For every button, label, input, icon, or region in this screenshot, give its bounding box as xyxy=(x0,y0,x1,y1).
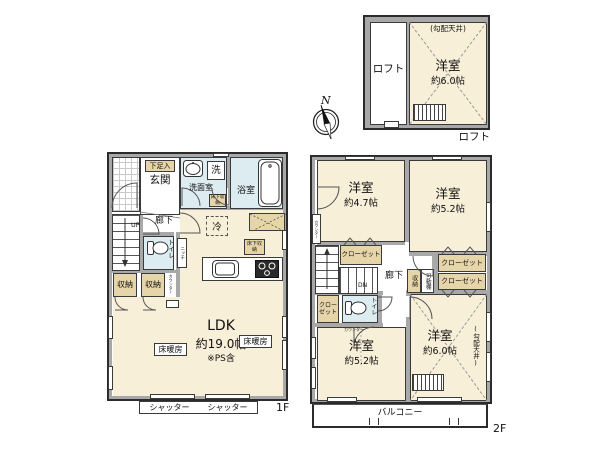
loft-room-size: 約6.0帖 xyxy=(409,77,487,88)
f2-room-se-ceiling: (勾配天井) xyxy=(471,325,478,380)
f2-dn-label: DN xyxy=(358,283,367,290)
loft-ladder-icon xyxy=(413,104,446,121)
f1-floor-heating-a-label: 床暖房 xyxy=(159,345,183,355)
f1-caption: 1F xyxy=(276,402,289,415)
f1-toilet-label: トイレ xyxy=(166,239,173,269)
loft-area-label: ロフト xyxy=(370,63,407,75)
f1-floor-heating-b: 床暖房 xyxy=(239,335,272,348)
loft-caption: ロフト xyxy=(448,131,490,143)
f2-balcony-label: バルコニー xyxy=(314,408,486,418)
second-floor-plan: クローゼット 収納 可動棚 クローゼット クローゼット クローゼット トイレ カ… xyxy=(310,155,492,404)
floor-plan-page: ロフト (勾配天井) 洋室 約6.0帖 ロフト N xyxy=(0,0,600,450)
f2-balcony-post xyxy=(369,418,379,425)
f1-floor-heating-a: 床暖房 xyxy=(154,343,187,356)
f1-genkan-label: 玄関 xyxy=(140,174,180,186)
f2-balcony-post xyxy=(449,418,459,425)
f2-caption: 2F xyxy=(493,423,506,436)
f1-shutter-strip: シャッター シャッター xyxy=(139,401,258,414)
f1-ldk-label: LDK xyxy=(191,318,251,334)
f2-room-sw-size: 約5.2帖 xyxy=(317,357,406,368)
loft-hatch-opening xyxy=(384,121,399,128)
f2-room-nw-size: 約4.7帖 xyxy=(317,199,405,210)
f2-room-sw-label: 洋室 xyxy=(317,339,406,353)
f2-room-ne-size: 約5.2帖 xyxy=(409,205,487,216)
f2-room-ne-label: 洋室 xyxy=(409,187,487,201)
f1-hallway-label: 廊下 xyxy=(149,216,179,226)
f1-washroom-label: 洗面室 xyxy=(181,183,221,192)
f2-hallway-label: 廊下 xyxy=(378,271,410,281)
f2-room-se-label: 洋室 xyxy=(407,329,473,343)
f1-shutter-b-label: シャッター xyxy=(208,403,248,413)
f1-shutter-a-label: シャッター xyxy=(150,403,190,413)
f1-ldk-note: ※PS含 xyxy=(191,354,251,364)
loft-ceiling-note: (勾配天井) xyxy=(409,25,487,34)
f2-room-nw-label: 洋室 xyxy=(317,181,405,195)
loft-plan: ロフト (勾配天井) 洋室 約6.0帖 xyxy=(363,15,490,130)
f1-bathroom-label: 浴室 xyxy=(230,186,262,196)
compass-north-letter: N xyxy=(320,94,331,107)
f1-floor-heating-b-label: 床暖房 xyxy=(244,337,268,347)
f1-up-label: UP xyxy=(131,222,140,229)
first-floor-plan: 下足入 洗 床下収納 ニッチ 収納 収納 カウンター 冷 xyxy=(107,152,288,401)
f2-room-se-size: 約6.0帖 xyxy=(407,347,473,358)
loft-room-label: 洋室 xyxy=(409,59,487,73)
compass-icon: N xyxy=(303,92,349,144)
f2-balcony: バルコニー xyxy=(312,404,488,428)
f2-ladder-icon xyxy=(412,374,444,391)
